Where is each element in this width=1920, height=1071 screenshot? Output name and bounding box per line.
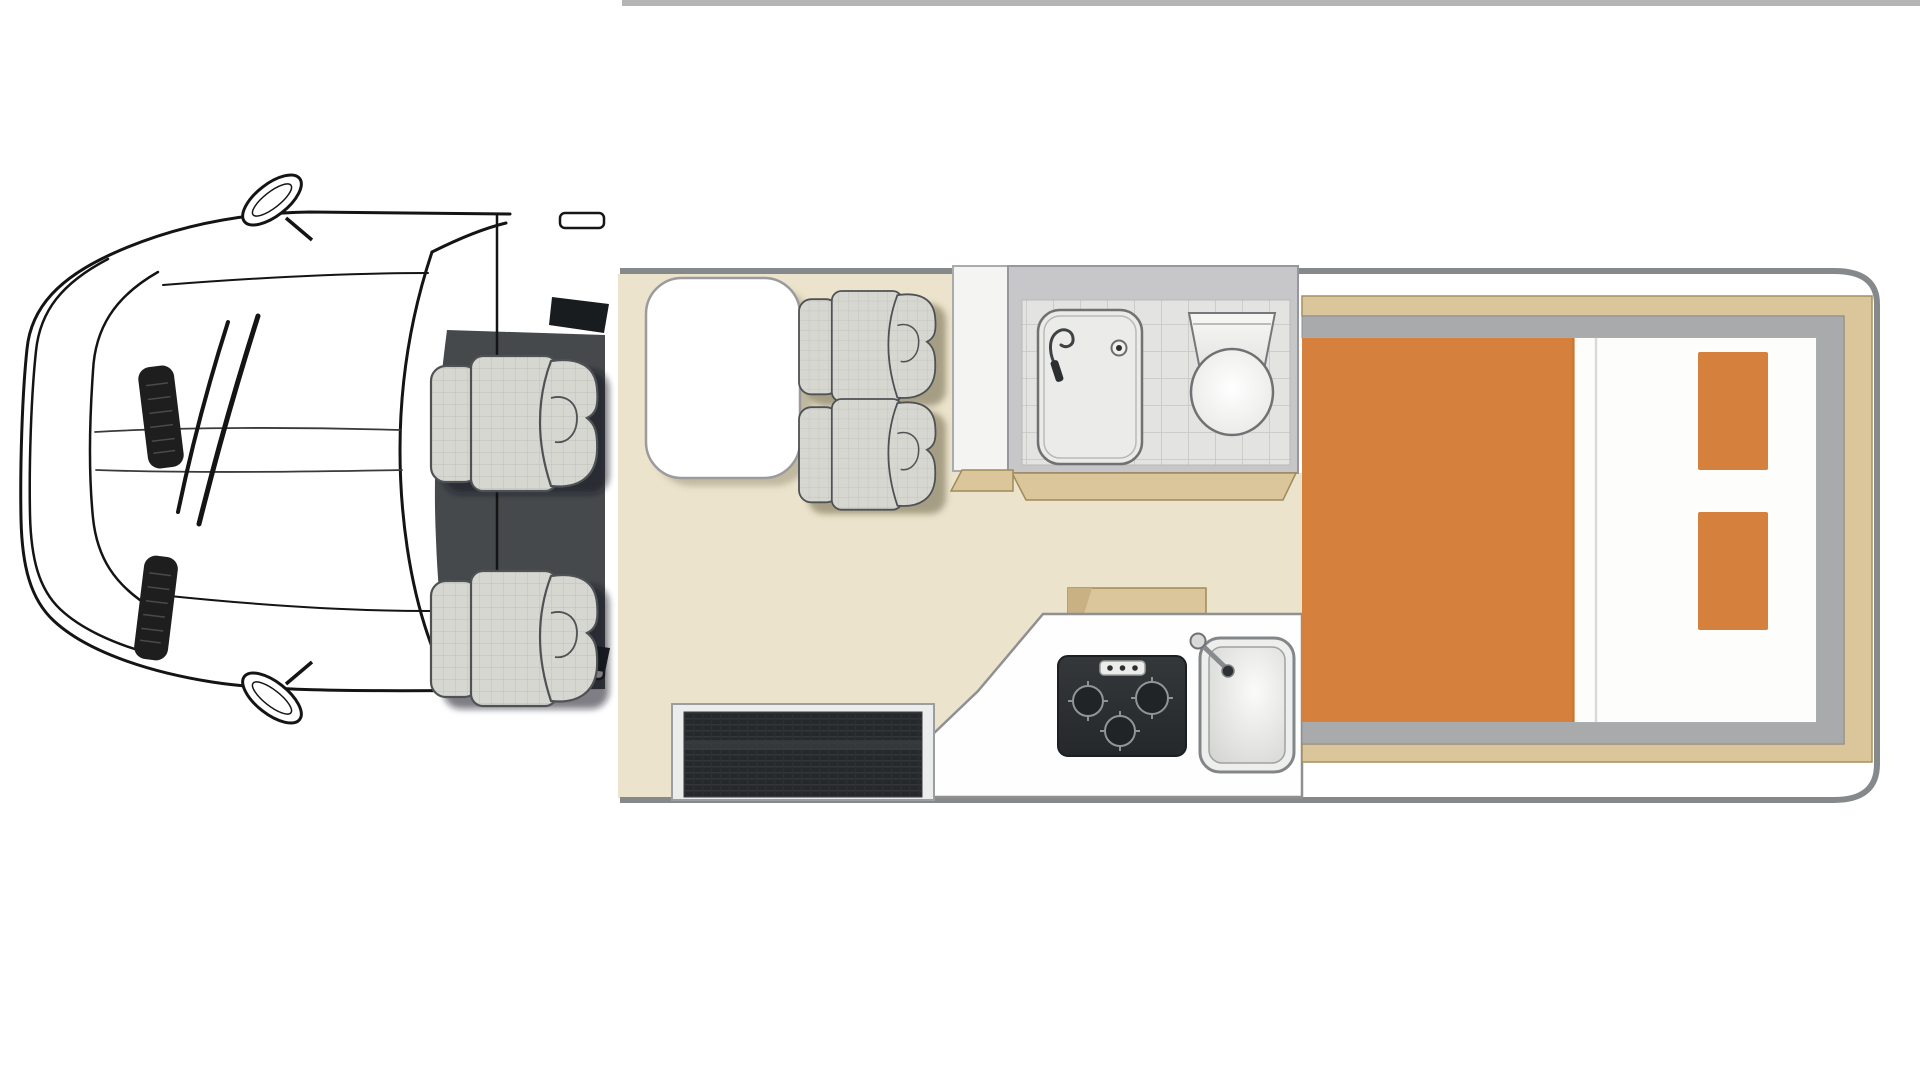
bathroom bbox=[1008, 266, 1298, 473]
entry-step-divider bbox=[684, 740, 922, 750]
kitchen-sink bbox=[1191, 634, 1295, 773]
hob-knob-1 bbox=[1107, 665, 1113, 671]
forward-facing-seat-1 bbox=[799, 291, 936, 402]
dinette-table bbox=[646, 278, 800, 478]
roof-edge-line bbox=[622, 0, 1920, 6]
driver-seat bbox=[431, 356, 598, 491]
duvet bbox=[1302, 338, 1574, 722]
pillow-1 bbox=[1698, 352, 1768, 470]
hob-knob-3 bbox=[1132, 665, 1138, 671]
burner-2 bbox=[1136, 682, 1168, 714]
burner-1 bbox=[1073, 686, 1103, 716]
floorplan-svg bbox=[0, 0, 1920, 1071]
hob-knob-2 bbox=[1120, 665, 1126, 671]
door-pillar-mark-top bbox=[549, 297, 609, 333]
kitchen-shelf bbox=[1068, 588, 1206, 614]
toilet-bowl bbox=[1191, 349, 1273, 435]
shower-drain-center bbox=[1116, 345, 1122, 351]
sink-faucet-knob bbox=[1191, 634, 1206, 649]
pillow-2 bbox=[1698, 512, 1768, 630]
stove bbox=[1058, 656, 1186, 756]
floorplan-canvas bbox=[0, 0, 1920, 1071]
entry-step-mat bbox=[684, 712, 922, 797]
rear-bed bbox=[1302, 296, 1872, 762]
wardrobe-panel bbox=[953, 266, 1008, 471]
corner-shelf bbox=[951, 470, 1013, 491]
duvet-edge bbox=[1572, 338, 1575, 722]
bathroom-step-trim bbox=[1012, 473, 1296, 500]
burner-3 bbox=[1105, 716, 1135, 746]
forward-facing-seat-2 bbox=[799, 399, 936, 510]
shower-tray bbox=[1038, 310, 1142, 464]
passenger-seat bbox=[431, 571, 598, 706]
door-handle-top bbox=[560, 213, 604, 228]
entry-step bbox=[672, 704, 934, 800]
